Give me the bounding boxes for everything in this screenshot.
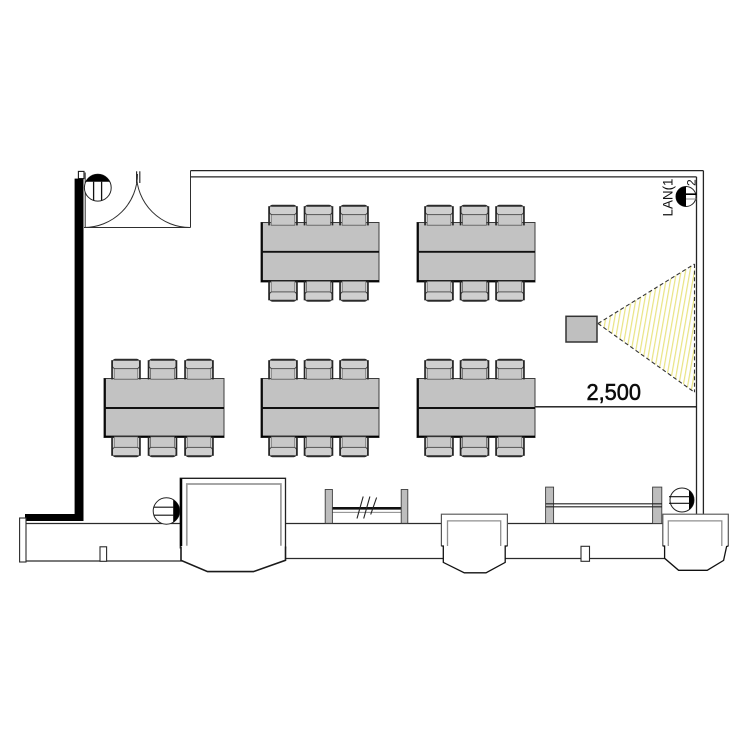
svg-text:2: 2: [685, 179, 699, 186]
svg-text:LAN(1: LAN(1: [661, 179, 676, 217]
svg-text:2,500: 2,500: [587, 379, 642, 405]
